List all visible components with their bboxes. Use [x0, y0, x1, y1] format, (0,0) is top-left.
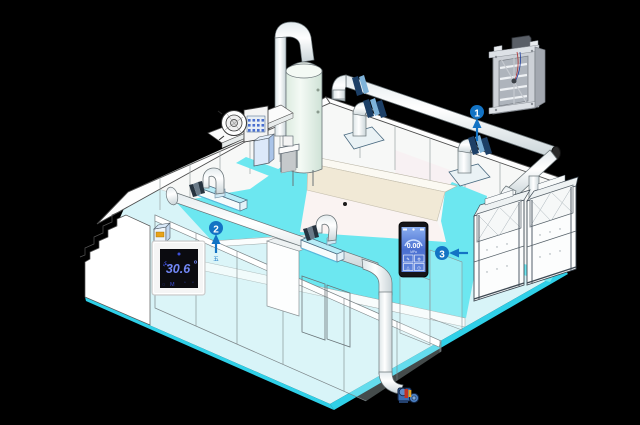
- svg-text:ˆ: ˆ: [184, 282, 186, 288]
- svg-text:0.00: 0.00: [407, 243, 421, 250]
- svg-text:1: 1: [474, 109, 480, 120]
- svg-text:◷: ◷: [417, 265, 421, 270]
- svg-text:2: 2: [213, 225, 219, 236]
- svg-text:⚙: ⚙: [417, 257, 421, 262]
- svg-text:ˇ: ˇ: [192, 282, 194, 288]
- svg-text:M: M: [170, 282, 175, 288]
- svg-text:五: 五: [213, 256, 219, 263]
- svg-text:30.6: 30.6: [166, 262, 191, 276]
- svg-text:✎: ✎: [406, 257, 409, 262]
- svg-text:3: 3: [439, 250, 445, 261]
- svg-text:⍼: ⍼: [163, 261, 169, 268]
- svg-text:MPa: MPa: [410, 250, 417, 254]
